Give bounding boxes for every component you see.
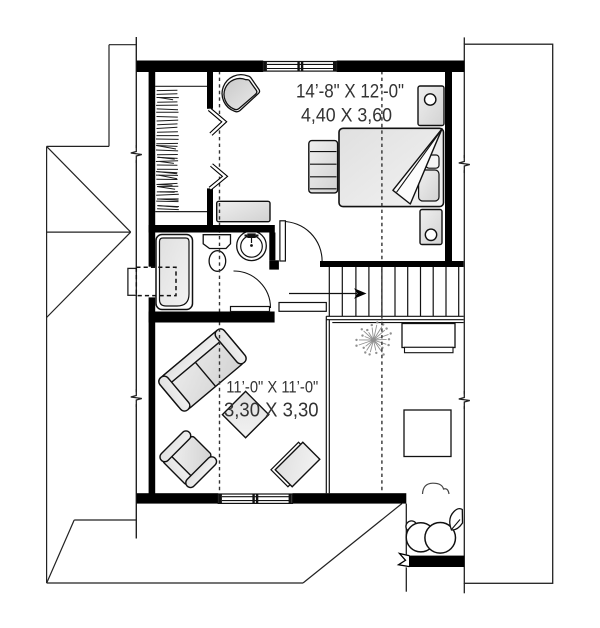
svg-text:3,30 X 3,30: 3,30 X 3,30 — [224, 400, 319, 422]
svg-text:14’-8" X 12’-0": 14’-8" X 12’-0" — [296, 82, 404, 103]
svg-text:4,40 X 3,60: 4,40 X 3,60 — [301, 105, 392, 127]
svg-text:11’-0" X 11’-0": 11’-0" X 11’-0" — [226, 379, 318, 397]
